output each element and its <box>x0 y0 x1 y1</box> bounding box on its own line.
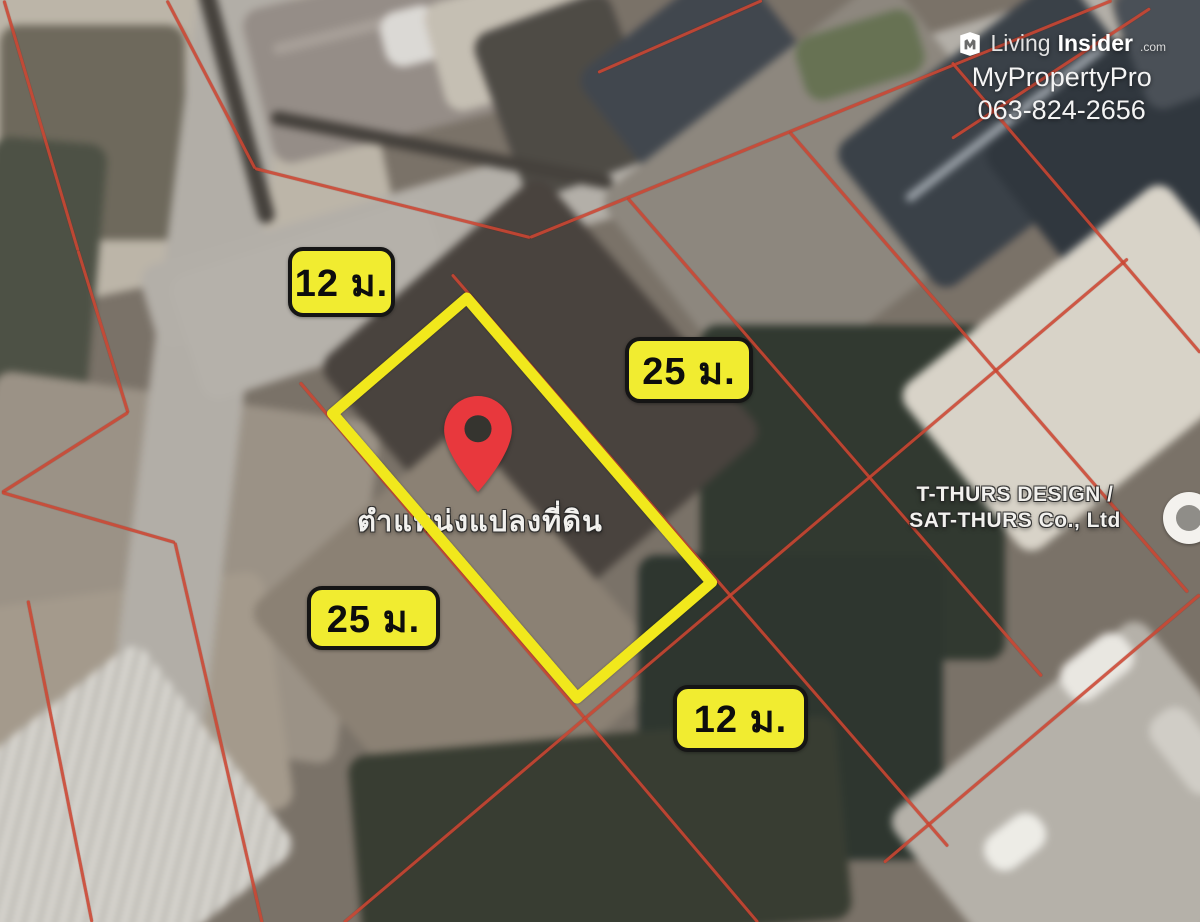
parcel-boundary-line <box>597 0 762 73</box>
livinginsider-logo-icon <box>957 31 983 57</box>
watermark-brand-tld: .com <box>1140 40 1166 57</box>
watermark-agent-name: MyPropertyPro <box>972 62 1152 93</box>
dimension-label-top-width: 12 ม. <box>288 247 395 317</box>
parcel-boundary-line <box>883 593 1200 863</box>
watermark-brand: LivingInsider.com <box>957 30 1166 57</box>
parcel-boundary-line <box>1 411 129 494</box>
parcel-boundary-line <box>174 542 264 922</box>
watermark-brand-living: Living <box>990 30 1050 57</box>
parcel-boundary-line <box>166 0 257 169</box>
business-label-line2: SAT-THURS Co., Ltd <box>850 508 1180 534</box>
location-pin-icon <box>444 396 512 492</box>
satellite-map: ตำแหน่งแปลงที่ดิน T-THURS DESIGN / SAT-T… <box>0 0 1200 922</box>
dimension-label-bottom-width: 12 ม. <box>673 685 808 752</box>
parcel-boundary-line <box>77 250 130 413</box>
parcel-boundary-line <box>255 167 531 239</box>
watermark-brand-insider: Insider <box>1058 30 1133 57</box>
map-business-label: T-THURS DESIGN / SAT-THURS Co., Ltd <box>850 482 1180 534</box>
business-label-line1: T-THURS DESIGN / <box>850 482 1180 508</box>
parcel-boundary-line <box>3 0 80 250</box>
watermark: LivingInsider.com MyPropertyPro 063-824-… <box>957 30 1166 126</box>
parcel-boundary-line <box>27 600 94 922</box>
dimension-label-right-length: 25 ม. <box>625 337 753 403</box>
watermark-phone: 063-824-2656 <box>978 95 1146 126</box>
parcel-boundary-line <box>2 491 176 544</box>
dimension-label-left-length: 25 ม. <box>307 586 440 650</box>
